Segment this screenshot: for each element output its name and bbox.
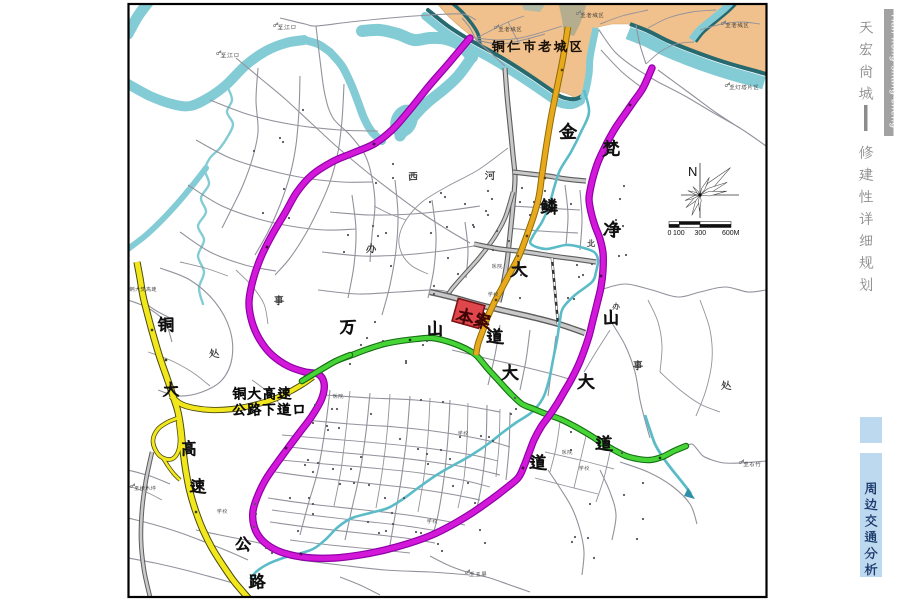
- svg-text:N: N: [688, 164, 697, 179]
- svg-text:300: 300: [695, 230, 707, 237]
- svg-text:100: 100: [673, 230, 685, 237]
- svg-text:600M: 600M: [722, 230, 740, 237]
- svg-text:Tian hong shang cheng: Tian hong shang cheng: [889, 13, 900, 129]
- svg-text:0: 0: [668, 230, 672, 237]
